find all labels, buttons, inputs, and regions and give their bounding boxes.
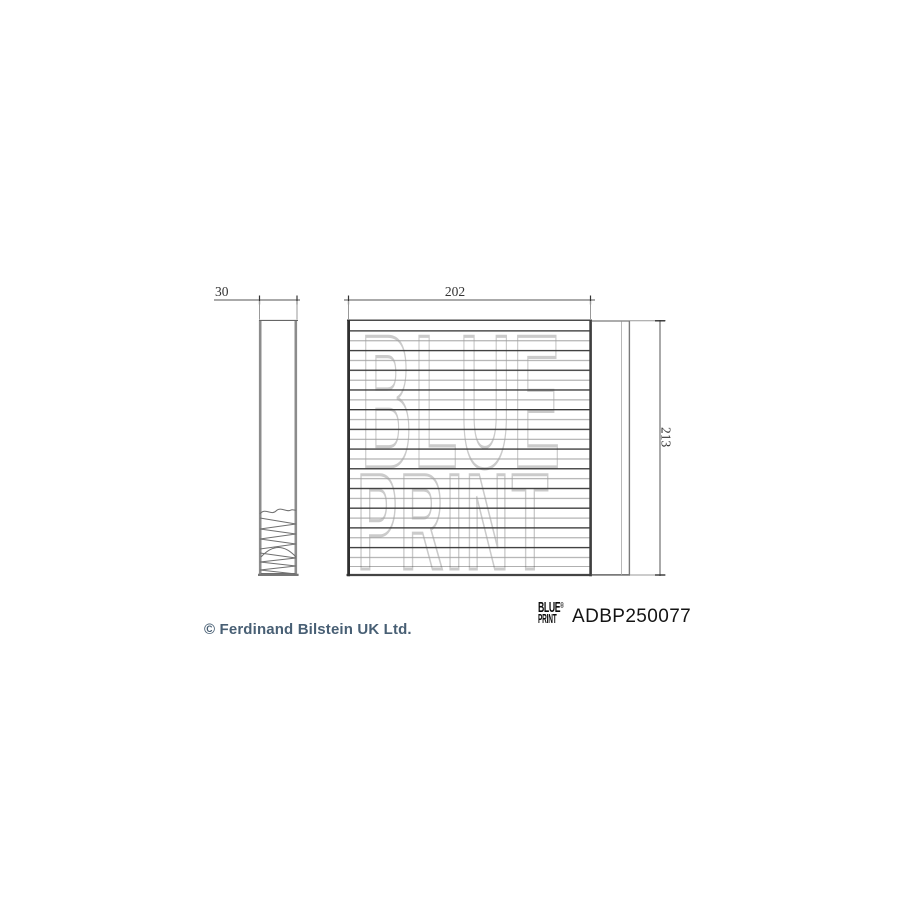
part-number: ADBP250077 <box>572 606 691 628</box>
registered-trademark-icon: ® <box>560 601 564 610</box>
side-view-pleat-section <box>260 509 296 574</box>
product-drawing-image: BLUE PRINT 30 <box>0 0 900 900</box>
dim-side-width-label: 30 <box>215 284 229 299</box>
copyright-text: © Ferdinand Bilstein UK Ltd. <box>204 621 412 638</box>
dimension-front-height: 213 <box>630 320 674 576</box>
side-view-body <box>258 320 299 576</box>
pleat-lines <box>348 329 591 567</box>
logo-print-text: PRINT <box>538 614 559 624</box>
technical-drawing: BLUE PRINT 30 <box>0 0 900 900</box>
side-view: 30 <box>214 284 300 576</box>
dim-front-height-label: 213 <box>659 427 674 448</box>
dim-front-width-label: 202 <box>445 284 465 299</box>
side-flange <box>592 321 630 576</box>
dimension-side-width: 30 <box>214 284 300 320</box>
